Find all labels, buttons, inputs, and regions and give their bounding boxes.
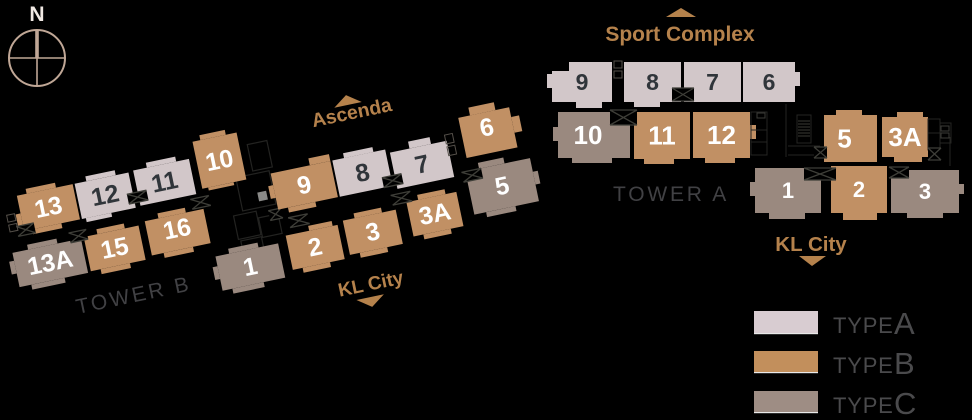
svg-text:10: 10 <box>203 144 236 177</box>
svg-text:7: 7 <box>706 69 719 95</box>
svg-text:13: 13 <box>32 191 65 224</box>
svg-text:15: 15 <box>98 232 131 265</box>
svg-text:C: C <box>894 386 916 420</box>
svg-text:3A: 3A <box>888 122 921 152</box>
svg-text:TOWER A: TOWER A <box>613 183 729 206</box>
svg-text:8: 8 <box>646 69 659 95</box>
svg-text:B: B <box>894 346 915 381</box>
svg-text:N: N <box>29 3 44 26</box>
svg-text:2: 2 <box>853 177 865 202</box>
svg-text:12: 12 <box>89 179 122 212</box>
svg-text:9: 9 <box>576 69 589 95</box>
svg-text:11: 11 <box>648 121 676 151</box>
svg-text:TYPE: TYPE <box>833 313 894 338</box>
svg-text:KL City: KL City <box>775 233 847 256</box>
svg-text:10: 10 <box>574 120 603 150</box>
svg-text:6: 6 <box>763 69 776 95</box>
svg-text:12: 12 <box>707 120 736 150</box>
svg-text:3: 3 <box>919 179 931 204</box>
svg-text:1: 1 <box>782 178 794 203</box>
svg-text:16: 16 <box>161 213 194 246</box>
svg-text:TYPE: TYPE <box>833 353 894 378</box>
svg-text:Sport Complex: Sport Complex <box>605 23 755 46</box>
svg-text:5: 5 <box>837 124 851 154</box>
svg-text:A: A <box>894 306 915 341</box>
svg-text:TYPE: TYPE <box>833 393 894 418</box>
